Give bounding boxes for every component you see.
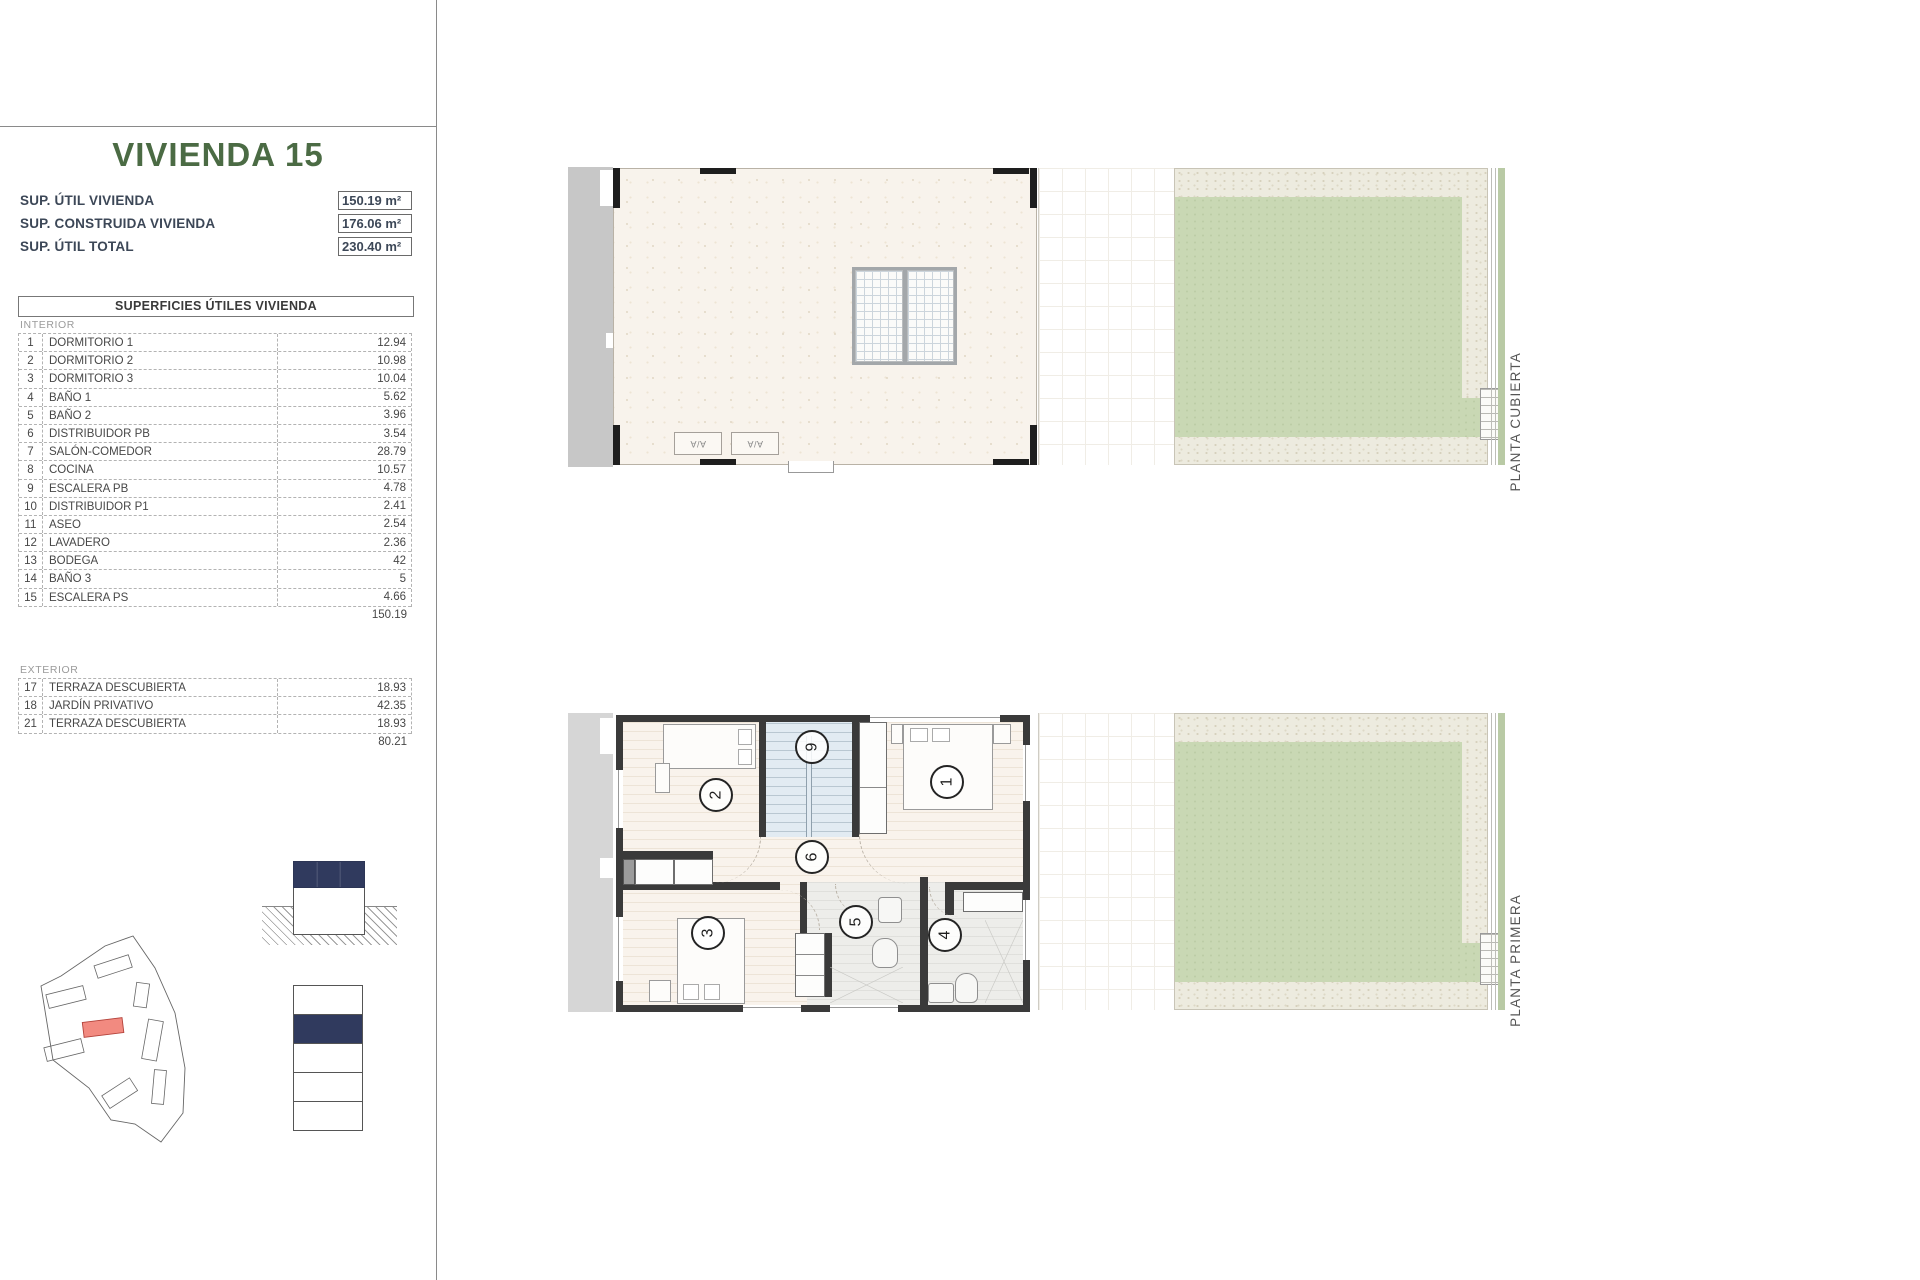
nightstand bbox=[649, 980, 671, 1002]
room-number: 9 bbox=[803, 743, 821, 752]
closet-shelf bbox=[796, 975, 824, 976]
boundary-line bbox=[1495, 713, 1496, 1010]
row-number: 13 bbox=[19, 552, 43, 569]
ac-unit-label: A/A bbox=[690, 439, 706, 449]
table-row: 15 ESCALERA PS 4.66 bbox=[19, 589, 411, 607]
row-name: BAÑO 2 bbox=[43, 407, 278, 424]
strip-notch bbox=[600, 858, 613, 878]
closet-stairs bbox=[859, 722, 887, 834]
row-name: DORMITORIO 2 bbox=[43, 352, 278, 369]
row-number: 6 bbox=[19, 425, 43, 442]
interior-rows: 1 DORMITORIO 1 12.94 2 DORMITORIO 2 10.9… bbox=[18, 333, 412, 607]
roof-wall-stub bbox=[1030, 168, 1037, 208]
row-value: 18.93 bbox=[278, 718, 411, 730]
terrace-grid-top bbox=[1038, 168, 1175, 465]
plan-label-cubierta: PLANTA CUBIERTA bbox=[1508, 352, 1523, 492]
skylight-panel bbox=[855, 270, 903, 362]
closet-shelf bbox=[796, 954, 824, 955]
closet-bathroom bbox=[963, 892, 1023, 912]
ac-unit-label: A/A bbox=[747, 439, 763, 449]
room-number: 4 bbox=[936, 931, 954, 940]
table-row: 9 ESCALERA PB 4.78 bbox=[19, 480, 411, 498]
summary-row: SUP. ÚTIL VIVIENDA 150.19 m² bbox=[20, 189, 412, 212]
terrace-grid-bottom bbox=[1038, 713, 1175, 1010]
room-circle-bedroom3: 3 bbox=[691, 916, 725, 950]
row-number: 14 bbox=[19, 570, 43, 587]
row-name: DORMITORIO 1 bbox=[43, 334, 278, 351]
row-name: ESCALERA PB bbox=[43, 480, 278, 497]
closet-bathroom bbox=[795, 933, 825, 997]
window bbox=[743, 1005, 801, 1012]
row-value: 5 bbox=[278, 573, 411, 585]
row-value: 2.41 bbox=[278, 500, 411, 512]
roof-wall-stub bbox=[1030, 425, 1037, 465]
row-value: 4.66 bbox=[278, 591, 411, 603]
shower-area bbox=[830, 967, 903, 1003]
pillow bbox=[932, 728, 950, 742]
room-number: 5 bbox=[847, 918, 865, 927]
plan-sheet: VIVIENDA 15 SUP. ÚTIL VIVIENDA 150.19 m²… bbox=[0, 0, 1920, 1280]
table-row: 5 BAÑO 2 3.96 bbox=[19, 407, 411, 425]
row-value: 2.54 bbox=[278, 518, 411, 530]
closet-hall bbox=[674, 859, 713, 885]
table-row: 12 LAVADERO 2.36 bbox=[19, 534, 411, 552]
level-stack-diagram bbox=[293, 986, 363, 1131]
row-name: TERRAZA DESCUBIERTA bbox=[43, 715, 278, 732]
garden-lawn-bottom bbox=[1175, 742, 1462, 982]
interior-wall bbox=[852, 722, 859, 837]
row-number: 9 bbox=[19, 480, 43, 497]
hedge-strip-top bbox=[1498, 168, 1505, 465]
row-value: 2.36 bbox=[278, 537, 411, 549]
room-circle-bedroom1: 1 bbox=[930, 765, 964, 799]
interior-total: 150.19 bbox=[18, 609, 412, 621]
room-number: 3 bbox=[699, 929, 717, 938]
plan-label-primera: PLANTA PRIMERA bbox=[1508, 894, 1523, 1027]
window bbox=[1023, 745, 1030, 801]
window bbox=[830, 1005, 898, 1012]
table-row: 2 DORMITORIO 2 10.98 bbox=[19, 352, 411, 370]
row-name: LAVADERO bbox=[43, 534, 278, 551]
row-value: 18.93 bbox=[278, 682, 411, 694]
row-number: 3 bbox=[19, 370, 43, 387]
room-circle-hall: 6 bbox=[795, 840, 829, 874]
window bbox=[870, 715, 1000, 722]
table-row: 1 DORMITORIO 1 12.94 bbox=[19, 334, 411, 352]
table-row: 8 COCINA 10.57 bbox=[19, 461, 411, 479]
row-value: 3.54 bbox=[278, 428, 411, 440]
row-value: 5.62 bbox=[278, 391, 411, 403]
door-arc bbox=[715, 837, 761, 883]
pillow bbox=[910, 728, 928, 742]
table-row: 17 TERRAZA DESCUBIERTA 18.93 bbox=[19, 679, 411, 697]
table-row: 13 BODEGA 42 bbox=[19, 552, 411, 570]
table-row: 6 DISTRIBUIDOR PB 3.54 bbox=[19, 425, 411, 443]
row-value: 4.78 bbox=[278, 482, 411, 494]
garden-lawn-top bbox=[1175, 197, 1462, 437]
toilet bbox=[872, 938, 898, 968]
sink bbox=[928, 983, 954, 1003]
shower-area bbox=[985, 920, 1023, 1003]
hedge-strip-bottom bbox=[1498, 713, 1505, 1010]
nightstand bbox=[655, 763, 670, 793]
table-row: 10 DISTRIBUIDOR P1 2.41 bbox=[19, 498, 411, 516]
row-number: 2 bbox=[19, 352, 43, 369]
site-plan-map bbox=[35, 928, 195, 1155]
toilet bbox=[955, 973, 978, 1003]
room-circle-bedroom2: 2 bbox=[699, 778, 733, 812]
level-row bbox=[293, 1072, 363, 1102]
summary-value: 230.40 m² bbox=[338, 237, 412, 256]
room-number: 1 bbox=[938, 778, 956, 787]
pillow bbox=[738, 749, 752, 765]
level-row bbox=[293, 1101, 363, 1131]
page-title: VIVIENDA 15 bbox=[40, 136, 396, 174]
row-value: 10.98 bbox=[278, 355, 411, 367]
summary-value: 150.19 m² bbox=[338, 191, 412, 210]
panel-top-rule bbox=[0, 126, 436, 127]
door-arc bbox=[859, 834, 909, 884]
nightstand bbox=[993, 724, 1011, 744]
table-row: 18 JARDÍN PRIVATIVO 42.35 bbox=[19, 697, 411, 715]
room-number: 6 bbox=[803, 853, 821, 862]
level-row-highlighted bbox=[293, 1014, 363, 1044]
row-name: SALÓN-COMEDOR bbox=[43, 443, 278, 460]
nightstand bbox=[891, 724, 903, 744]
interior-wall bbox=[759, 722, 766, 837]
room-circle-stairs: 9 bbox=[795, 730, 829, 764]
roof-wall-stub bbox=[613, 425, 620, 465]
window bbox=[616, 917, 623, 981]
summary-label: SUP. CONSTRUIDA VIVIENDA bbox=[20, 216, 215, 231]
roof-edge-notch bbox=[788, 461, 834, 473]
row-number: 17 bbox=[19, 679, 43, 696]
summary-label: SUP. ÚTIL VIVIENDA bbox=[20, 193, 154, 208]
row-number: 21 bbox=[19, 715, 43, 732]
row-number: 11 bbox=[19, 516, 43, 533]
sink bbox=[878, 897, 902, 923]
site-boundary bbox=[41, 936, 185, 1142]
pillow bbox=[683, 984, 699, 1000]
pillow bbox=[704, 984, 720, 1000]
row-number: 12 bbox=[19, 534, 43, 551]
row-name: DISTRIBUIDOR P1 bbox=[43, 498, 278, 515]
ac-unit: A/A bbox=[674, 432, 722, 455]
row-number: 7 bbox=[19, 443, 43, 460]
interior-wall bbox=[920, 877, 928, 1005]
table-row: 7 SALÓN-COMEDOR 28.79 bbox=[19, 443, 411, 461]
row-name: TERRAZA DESCUBIERTA bbox=[43, 679, 278, 696]
row-name: BAÑO 3 bbox=[43, 570, 278, 587]
row-number: 15 bbox=[19, 589, 43, 606]
table-row: 4 BAÑO 1 5.62 bbox=[19, 389, 411, 407]
row-value: 42.35 bbox=[278, 700, 411, 712]
section-diagram-floor-box bbox=[293, 885, 365, 935]
row-number: 8 bbox=[19, 461, 43, 478]
boundary-line bbox=[1491, 713, 1492, 1010]
table-row: 11 ASEO 2.54 bbox=[19, 516, 411, 534]
row-value: 10.57 bbox=[278, 464, 411, 476]
window bbox=[1023, 900, 1030, 960]
level-row bbox=[293, 985, 363, 1015]
table-row: 21 TERRAZA DESCUBIERTA 18.93 bbox=[19, 715, 411, 733]
first-floor-plan: 9 2 1 6 5 3 4 bbox=[616, 715, 1030, 1012]
row-name: DISTRIBUIDOR PB bbox=[43, 425, 278, 442]
table-row: 14 BAÑO 3 5 bbox=[19, 570, 411, 588]
closet-shelf bbox=[860, 787, 886, 788]
roof-wall-stub bbox=[993, 168, 1029, 174]
boundary-line bbox=[1495, 168, 1496, 465]
exterior-section-label: EXTERIOR bbox=[20, 664, 78, 676]
skylight-grid bbox=[852, 267, 957, 365]
panel-divider bbox=[436, 0, 437, 1280]
section-diagram-highlight-level bbox=[293, 861, 365, 888]
row-name: ASEO bbox=[43, 516, 278, 533]
row-number: 5 bbox=[19, 407, 43, 424]
interior-wall bbox=[623, 851, 713, 859]
areas-table-header: SUPERFICIES ÚTILES VIVIENDA bbox=[18, 296, 414, 317]
summary-label: SUP. ÚTIL TOTAL bbox=[20, 239, 134, 254]
level-row bbox=[293, 1043, 363, 1073]
row-name: DORMITORIO 3 bbox=[43, 370, 278, 387]
closet-hall bbox=[635, 859, 674, 885]
row-name: BODEGA bbox=[43, 552, 278, 569]
strip-notch bbox=[600, 170, 613, 206]
summary-row: SUP. ÚTIL TOTAL 230.40 m² bbox=[20, 235, 412, 258]
row-value: 10.04 bbox=[278, 373, 411, 385]
summary-row: SUP. CONSTRUIDA VIVIENDA 176.06 m² bbox=[20, 212, 412, 235]
roof-wall-stub bbox=[613, 168, 620, 208]
exterior-total: 80.21 bbox=[18, 736, 412, 748]
roof-wall-stub bbox=[700, 459, 736, 465]
row-number: 18 bbox=[19, 697, 43, 714]
pillow bbox=[738, 729, 752, 745]
room-circle-bath2: 5 bbox=[839, 905, 873, 939]
shaft bbox=[623, 859, 635, 885]
row-name: COCINA bbox=[43, 461, 278, 478]
row-value: 42 bbox=[278, 555, 411, 567]
summary-list: SUP. ÚTIL VIVIENDA 150.19 m² SUP. CONSTR… bbox=[20, 189, 412, 258]
row-value: 3.96 bbox=[278, 409, 411, 421]
table-row: 3 DORMITORIO 3 10.04 bbox=[19, 370, 411, 388]
boundary-line bbox=[1491, 168, 1492, 465]
row-number: 10 bbox=[19, 498, 43, 515]
exterior-rows: 17 TERRAZA DESCUBIERTA 18.93 18 JARDÍN P… bbox=[18, 678, 412, 734]
row-name: JARDÍN PRIVATIVO bbox=[43, 697, 278, 714]
summary-value: 176.06 m² bbox=[338, 214, 412, 233]
row-name: ESCALERA PS bbox=[43, 589, 278, 606]
sidewalk-strip-top bbox=[568, 167, 613, 467]
roof-wall-stub bbox=[993, 459, 1029, 465]
strip-notch bbox=[606, 333, 613, 348]
row-value: 28.79 bbox=[278, 446, 411, 458]
strip-notch bbox=[600, 718, 613, 754]
skylight-panel bbox=[907, 270, 955, 362]
room-number: 2 bbox=[707, 791, 725, 800]
bed-room2 bbox=[663, 724, 756, 769]
row-number: 4 bbox=[19, 389, 43, 406]
row-number: 1 bbox=[19, 334, 43, 351]
window bbox=[616, 770, 623, 828]
roof-wall-stub bbox=[700, 168, 736, 174]
ac-unit: A/A bbox=[731, 432, 779, 455]
room-circle-bath1: 4 bbox=[928, 918, 962, 952]
row-name: BAÑO 1 bbox=[43, 389, 278, 406]
roof-plan-area bbox=[613, 168, 1037, 465]
interior-section-label: INTERIOR bbox=[20, 319, 75, 331]
row-value: 12.94 bbox=[278, 337, 411, 349]
